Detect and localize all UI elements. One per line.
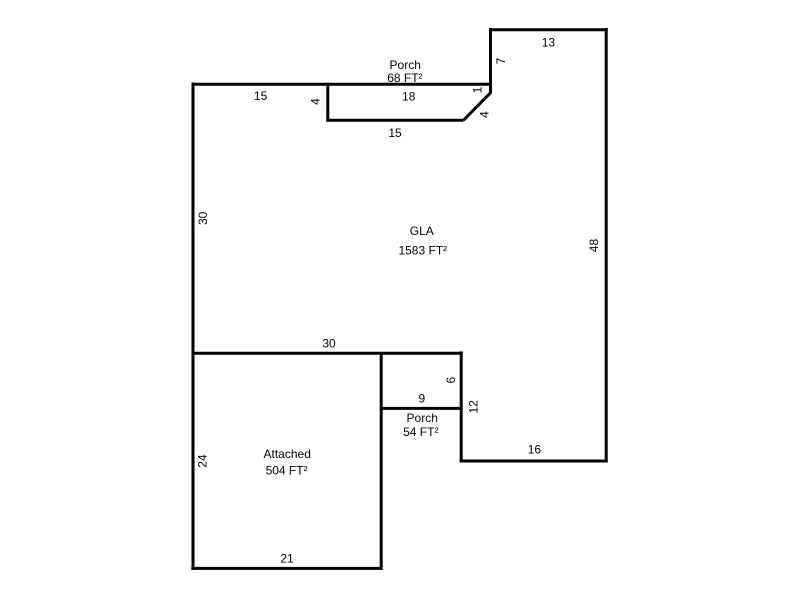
svg-text:30: 30 [196, 211, 210, 225]
svg-text:4: 4 [477, 111, 491, 118]
svg-text:30: 30 [322, 337, 336, 351]
svg-text:4: 4 [309, 98, 323, 105]
svg-text:48: 48 [587, 239, 601, 253]
svg-text:68 FT²: 68 FT² [387, 71, 422, 85]
svg-text:12: 12 [467, 400, 481, 414]
svg-text:504 FT²: 504 FT² [266, 463, 308, 477]
svg-text:15: 15 [388, 126, 402, 140]
svg-text:13: 13 [542, 35, 556, 49]
svg-text:15: 15 [254, 89, 268, 103]
svg-text:Porch: Porch [407, 411, 438, 425]
svg-text:Attached: Attached [264, 447, 311, 461]
svg-text:6: 6 [444, 376, 458, 383]
svg-text:GLA: GLA [410, 224, 434, 238]
svg-text:1: 1 [470, 86, 484, 93]
svg-text:24: 24 [196, 454, 210, 468]
svg-text:Porch: Porch [390, 58, 421, 72]
svg-text:21: 21 [280, 551, 294, 565]
svg-text:7: 7 [494, 57, 508, 64]
svg-text:16: 16 [528, 443, 542, 457]
svg-text:1583 FT²: 1583 FT² [398, 243, 447, 257]
svg-text:54 FT²: 54 FT² [403, 425, 438, 439]
svg-text:18: 18 [402, 89, 416, 103]
svg-text:9: 9 [419, 391, 426, 405]
